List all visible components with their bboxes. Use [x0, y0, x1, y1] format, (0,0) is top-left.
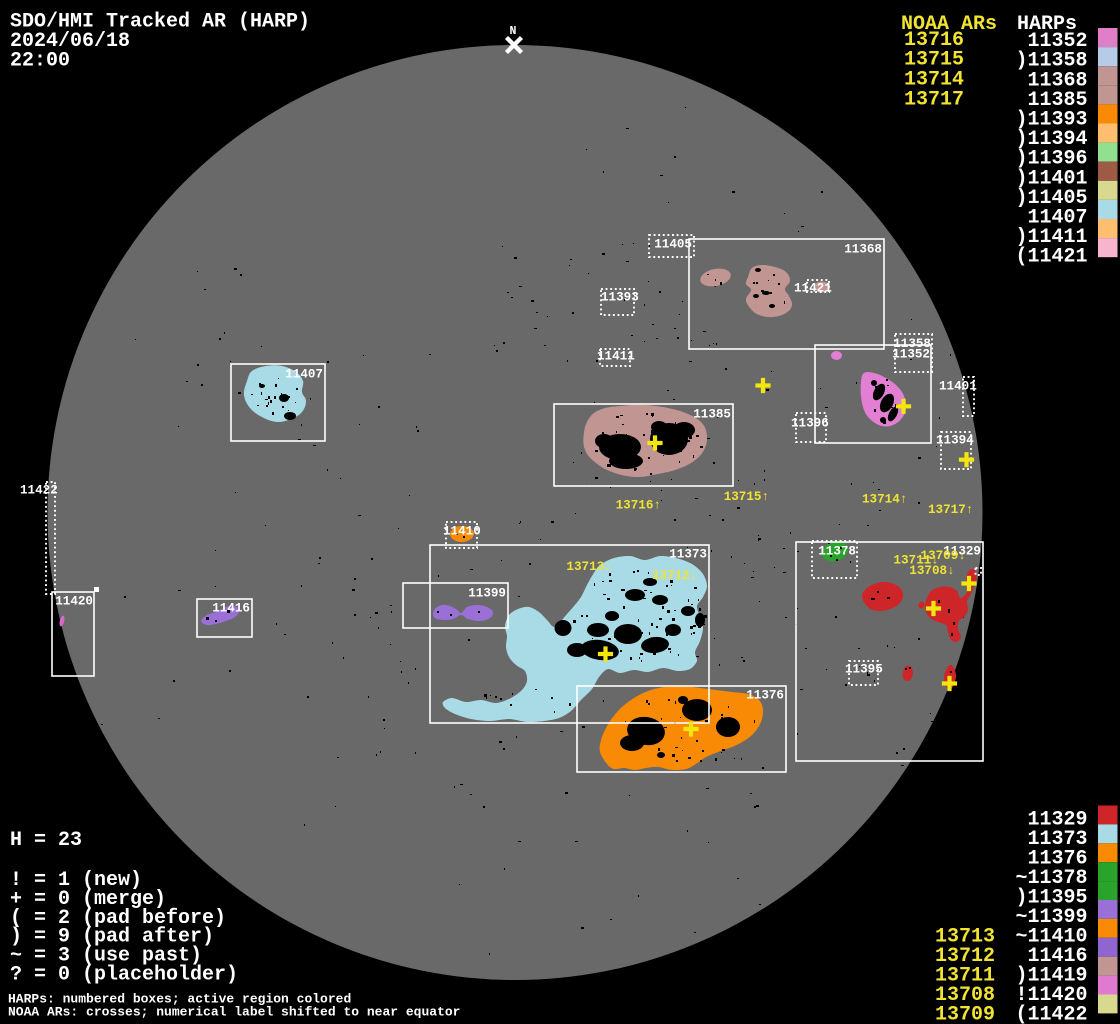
svg-text:13708↓: 13708↓ — [909, 564, 954, 578]
svg-text:11405: 11405 — [654, 237, 692, 251]
svg-text:13714↑: 13714↑ — [862, 493, 907, 507]
svg-text:13709: 13709 — [935, 1004, 995, 1024]
svg-text:13713↓: 13713↓ — [566, 560, 611, 574]
svg-text:13717↑: 13717↑ — [928, 503, 973, 517]
svg-text:11421: 11421 — [794, 281, 832, 295]
svg-text:(11421: (11421 — [1015, 246, 1087, 269]
svg-text:11407: 11407 — [285, 368, 323, 382]
svg-text:? = 0 (placeholder): ? = 0 (placeholder) — [10, 964, 238, 987]
svg-text:11385: 11385 — [693, 408, 731, 422]
svg-text:22:00: 22:00 — [10, 49, 70, 72]
svg-text:11411: 11411 — [597, 349, 635, 363]
svg-text:13716↑: 13716↑ — [616, 499, 661, 513]
svg-text:11401: 11401 — [939, 379, 977, 393]
svg-text:13712↓: 13712↓ — [652, 569, 697, 583]
svg-text:13715↑: 13715↑ — [724, 490, 769, 504]
svg-text:N: N — [510, 25, 517, 38]
svg-text:11378: 11378 — [818, 544, 856, 558]
svg-text:11352: 11352 — [892, 347, 930, 361]
svg-text:11396: 11396 — [791, 416, 829, 430]
svg-text:13709↓: 13709↓ — [921, 549, 966, 563]
svg-text:11368: 11368 — [844, 243, 882, 257]
svg-text:11399: 11399 — [468, 587, 506, 601]
svg-text:11416: 11416 — [212, 602, 250, 616]
svg-text:13717: 13717 — [904, 88, 964, 111]
svg-text:11373: 11373 — [669, 548, 707, 562]
svg-text:11410: 11410 — [443, 524, 481, 538]
svg-text:(11422: (11422 — [1015, 1004, 1087, 1024]
svg-text:11376: 11376 — [746, 689, 784, 703]
svg-text:11394: 11394 — [936, 433, 974, 447]
svg-text:11422: 11422 — [20, 483, 58, 497]
svg-text:11393: 11393 — [601, 290, 639, 304]
svg-text:11395: 11395 — [845, 662, 883, 676]
svg-text:H = 23: H = 23 — [10, 829, 82, 852]
svg-text:NOAA ARs: crosses; numerical l: NOAA ARs: crosses; numerical label shift… — [8, 1005, 460, 1020]
svg-text:11420: 11420 — [55, 595, 93, 609]
